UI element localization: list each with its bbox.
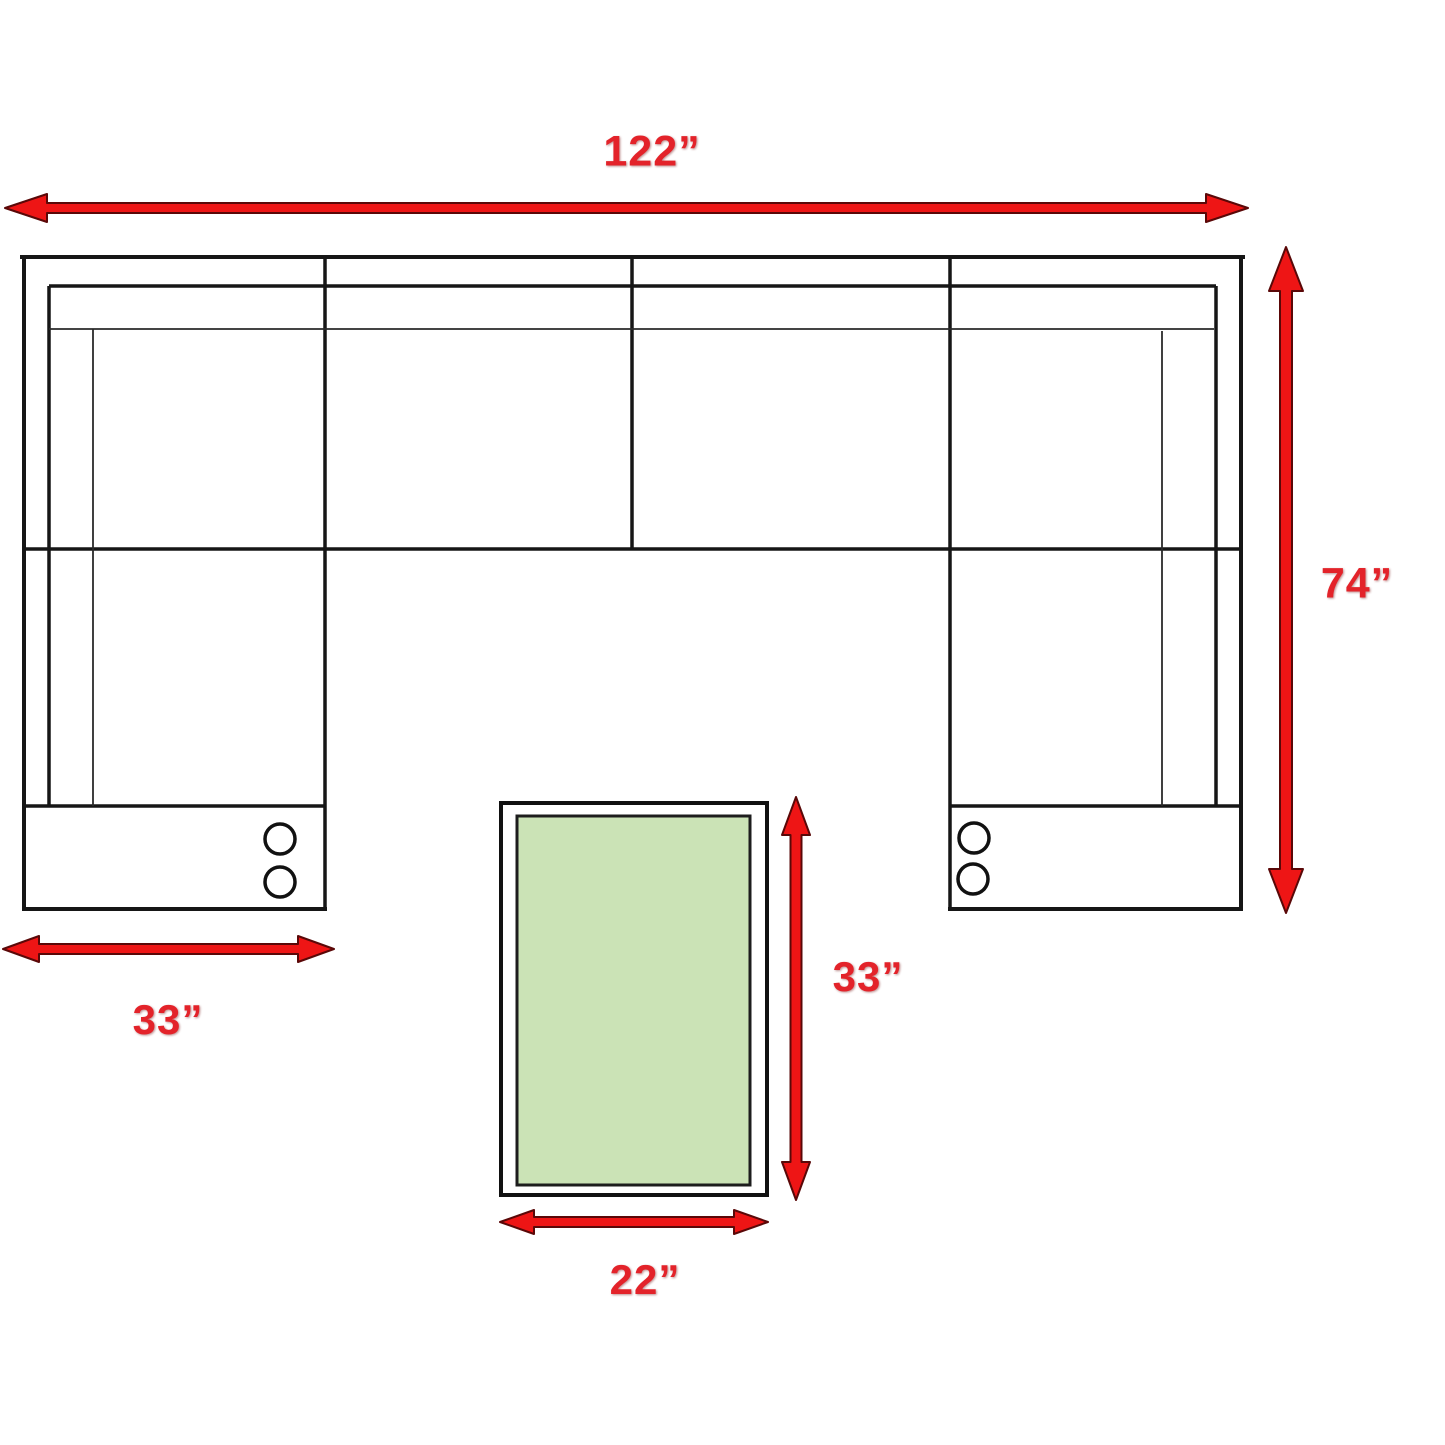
dimension-diagram-page: 122” 74” 33” 33” 22” (0, 0, 1445, 1445)
cupholder-circle (265, 867, 295, 897)
ottoman-width-label: 22” (610, 1256, 681, 1304)
cupholder-circle (958, 864, 988, 894)
sofa-width-arrow (5, 194, 1248, 222)
ottoman-length-arrow (782, 797, 810, 1200)
sofa-depth-arrow (1269, 247, 1303, 913)
ottoman-length-label: 33” (833, 953, 904, 1001)
chaise-width-label: 33” (133, 996, 204, 1044)
ottoman-width-arrow (500, 1210, 768, 1234)
cupholder-circle (959, 823, 989, 853)
sectional-sofa-diagram (0, 0, 1445, 1445)
sofa-width-label: 122” (603, 128, 700, 177)
sofa-depth-label: 74” (1321, 560, 1393, 609)
chaise-width-arrow (3, 936, 334, 962)
right-chaise-cupholders (958, 823, 989, 894)
ottoman (501, 803, 767, 1195)
cupholder-circle (265, 824, 295, 854)
ottoman-cushion-rect (517, 816, 750, 1185)
left-chaise-cupholders (265, 824, 295, 897)
